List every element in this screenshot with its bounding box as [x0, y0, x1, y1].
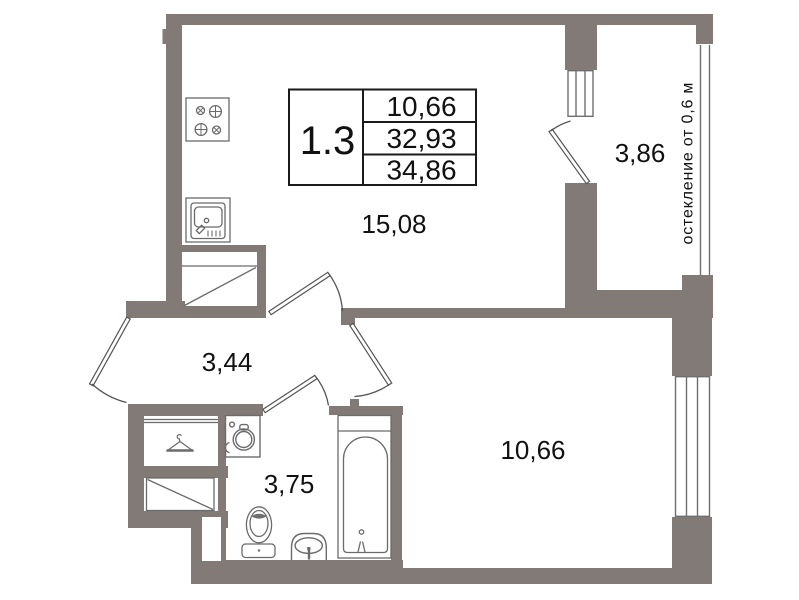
svg-text:10,66: 10,66 — [386, 91, 456, 122]
svg-text:3,75: 3,75 — [264, 469, 315, 499]
svg-text:1.3: 1.3 — [300, 119, 356, 163]
svg-text:32,93: 32,93 — [386, 123, 456, 154]
svg-text:15,08: 15,08 — [361, 209, 426, 239]
svg-text:3,86: 3,86 — [615, 138, 666, 168]
svg-text:10,66: 10,66 — [500, 435, 565, 465]
svg-text:34,86: 34,86 — [386, 155, 456, 186]
svg-text:остекление от 0,6 м: остекление от 0,6 м — [680, 82, 697, 245]
svg-text:3,44: 3,44 — [202, 347, 253, 377]
